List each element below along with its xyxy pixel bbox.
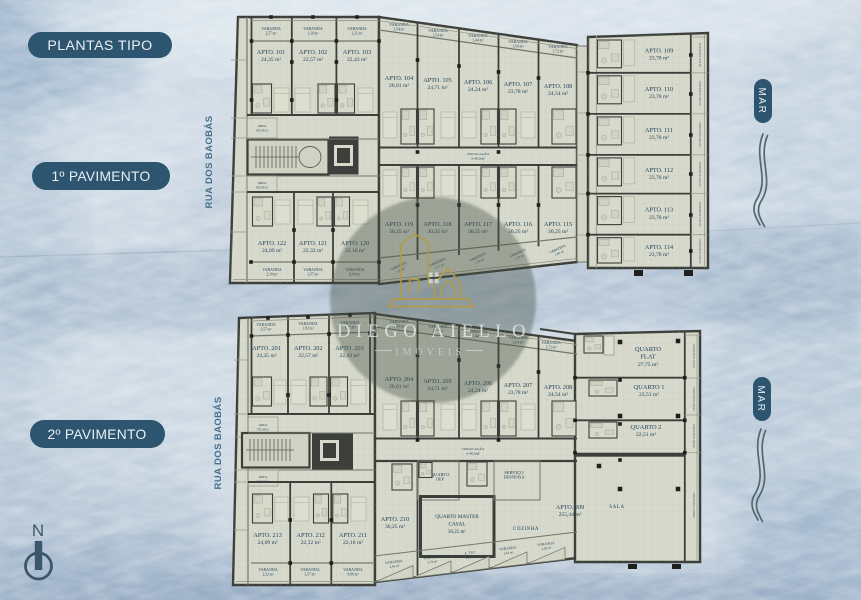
svg-text:24,54 m²: 24,54 m² — [548, 392, 568, 398]
svg-text:24,09 m²: 24,09 m² — [258, 540, 278, 546]
svg-text:DEP: DEP — [436, 476, 444, 481]
svg-text:APTO. 210: APTO. 210 — [381, 516, 409, 523]
svg-text:CIRCULAÇÃO: CIRCULAÇÃO — [467, 151, 490, 156]
svg-text:2º PAVIMENTO: 2º PAVIMENTO — [47, 427, 146, 442]
svg-text:1º PAVIMENTO: 1º PAVIMENTO — [51, 169, 150, 184]
svg-text:APTO. 105: APTO. 105 — [423, 77, 451, 84]
svg-text:APTO. 106: APTO. 106 — [464, 79, 492, 86]
svg-text:APTO. 212: APTO. 212 — [296, 532, 324, 539]
svg-text:23,78 m²: 23,78 m² — [649, 94, 669, 100]
svg-text:22,18 m²: 22,18 m² — [343, 540, 363, 546]
svg-text:APTO. 104: APTO. 104 — [385, 75, 413, 82]
svg-text:APTO. 113: APTO. 113 — [645, 207, 673, 214]
svg-text:22,32 m²: 22,32 m² — [303, 248, 323, 254]
svg-text:VARANDA: VARANDA — [262, 267, 282, 272]
svg-text:DESPENSA: DESPENSA — [504, 474, 525, 479]
svg-text:22,32 m²: 22,32 m² — [301, 540, 321, 546]
svg-text:23,78 m²: 23,78 m² — [649, 56, 669, 62]
svg-text:VARANDA: VARANDA — [347, 26, 367, 31]
svg-text:APTO. 122: APTO. 122 — [258, 240, 286, 247]
svg-text:RUA DOS BAOBÁS: RUA DOS BAOBÁS — [213, 397, 224, 490]
svg-text:APTO. 121: APTO. 121 — [299, 240, 327, 247]
svg-text:VARANDA: VARANDA — [298, 321, 318, 326]
svg-text:30,25 m²: 30,25 m² — [385, 524, 405, 530]
svg-text:IMÓVEIS: IMÓVEIS — [395, 346, 465, 358]
svg-text:QUARTO 1: QUARTO 1 — [634, 384, 665, 391]
svg-text:CIRCULAÇÃO: CIRCULAÇÃO — [462, 446, 485, 451]
svg-text:ÁREA: ÁREA — [258, 180, 267, 185]
svg-text:24,09 m²: 24,09 m² — [262, 248, 282, 254]
svg-text:APTO. 108: APTO. 108 — [544, 83, 572, 90]
svg-text:24,54 m²: 24,54 m² — [548, 91, 568, 97]
svg-text:QUARTO: QUARTO — [635, 346, 662, 353]
svg-text:ÁREA: ÁREA — [259, 474, 268, 479]
svg-text:VARANDA: VARANDA — [258, 567, 278, 572]
svg-text:23,78 m²: 23,78 m² — [649, 135, 669, 141]
svg-text:ÁREA: ÁREA — [258, 123, 267, 128]
svg-text:26,01 m²: 26,01 m² — [389, 83, 409, 89]
svg-text:23,78 m²: 23,78 m² — [508, 390, 528, 396]
svg-text:APTO. 114: APTO. 114 — [645, 244, 673, 251]
svg-text:ÁREA: ÁREA — [259, 422, 268, 427]
svg-text:APTO. 116: APTO. 116 — [504, 221, 532, 228]
svg-text:APTO. 115: APTO. 115 — [544, 221, 572, 228]
svg-text:APTO. 103: APTO. 103 — [343, 49, 371, 56]
svg-text:TÉCNICA: TÉCNICA — [257, 427, 270, 431]
svg-text:RUA DOS BAOBÁS: RUA DOS BAOBÁS — [204, 116, 215, 209]
svg-text:23,78 m²: 23,78 m² — [649, 252, 669, 258]
svg-text:QUARTO 2: QUARTO 2 — [631, 424, 662, 431]
svg-text:TÉCNICA: TÉCNICA — [256, 128, 269, 132]
svg-text:CASAL: CASAL — [448, 522, 465, 528]
svg-text:23,78 m²: 23,78 m² — [649, 215, 669, 221]
svg-text:27,75 m²: 27,75 m² — [638, 362, 658, 368]
svg-text:APTO. 202: APTO. 202 — [294, 345, 322, 352]
svg-text:22,57 m²: 22,57 m² — [303, 57, 323, 63]
svg-text:TÉCNICA: TÉCNICA — [256, 185, 269, 189]
svg-text:VARANDA: VARANDA — [303, 26, 323, 31]
svg-text:APTO. 110: APTO. 110 — [645, 86, 673, 93]
svg-text:22,57 m²: 22,57 m² — [298, 353, 318, 359]
svg-text:COZINHA: COZINHA — [513, 527, 539, 532]
svg-text:APTO. 208: APTO. 208 — [544, 384, 572, 391]
svg-text:SALA: SALA — [609, 505, 624, 510]
svg-text:22,51 m²: 22,51 m² — [636, 432, 656, 438]
svg-text:24,24 m²: 24,24 m² — [468, 87, 488, 93]
svg-text:24,35 m²: 24,35 m² — [256, 353, 276, 359]
svg-text:PLANTAS TIPO: PLANTAS TIPO — [47, 38, 152, 54]
svg-text:22,51 m²: 22,51 m² — [639, 392, 659, 398]
svg-text:24,35 m²: 24,35 m² — [261, 57, 281, 63]
svg-text:MAR: MAR — [755, 385, 766, 412]
svg-text:VARANDA: VARANDA — [300, 567, 320, 572]
svg-text:VARANDA: VARANDA — [343, 567, 363, 572]
svg-text:APTO. 209: APTO. 209 — [556, 504, 584, 511]
svg-text:APTO. 109: APTO. 109 — [645, 47, 673, 54]
svg-text:MAR: MAR — [756, 87, 767, 114]
svg-text:APTO. 201: APTO. 201 — [252, 345, 280, 352]
svg-text:VARANDA: VARANDA — [261, 26, 281, 31]
svg-text:30,25 m²: 30,25 m² — [548, 229, 568, 235]
svg-text:APTO. 112: APTO. 112 — [645, 167, 673, 174]
svg-text:APTO. 111: APTO. 111 — [645, 127, 673, 134]
svg-text:DIEGO AIELLO: DIEGO AIELLO — [337, 322, 531, 342]
svg-text:30,25 m²: 30,25 m² — [448, 529, 466, 535]
svg-text:FLAT: FLAT — [640, 354, 655, 361]
svg-text:23,78 m²: 23,78 m² — [508, 89, 528, 95]
svg-text:VARANDA: VARANDA — [303, 267, 323, 272]
svg-text:APTO. 213: APTO. 213 — [253, 532, 281, 539]
svg-text:QUARTO MASTER: QUARTO MASTER — [435, 514, 479, 520]
svg-text:255,44 m²: 255,44 m² — [559, 512, 582, 518]
svg-text:APTO. 207: APTO. 207 — [504, 382, 532, 389]
svg-text:23,78 m²: 23,78 m² — [649, 175, 669, 181]
svg-text:APTO. 101: APTO. 101 — [257, 49, 285, 56]
svg-text:VARANDA: VARANDA — [256, 322, 276, 327]
svg-text:APTO. 102: APTO. 102 — [299, 49, 327, 56]
svg-text:24,71 m²: 24,71 m² — [427, 85, 447, 91]
svg-text:APTO. 211: APTO. 211 — [339, 532, 367, 539]
svg-text:22,43 m²: 22,43 m² — [347, 57, 367, 63]
svg-text:N: N — [32, 521, 44, 540]
svg-text:APTO. 107: APTO. 107 — [504, 81, 532, 88]
